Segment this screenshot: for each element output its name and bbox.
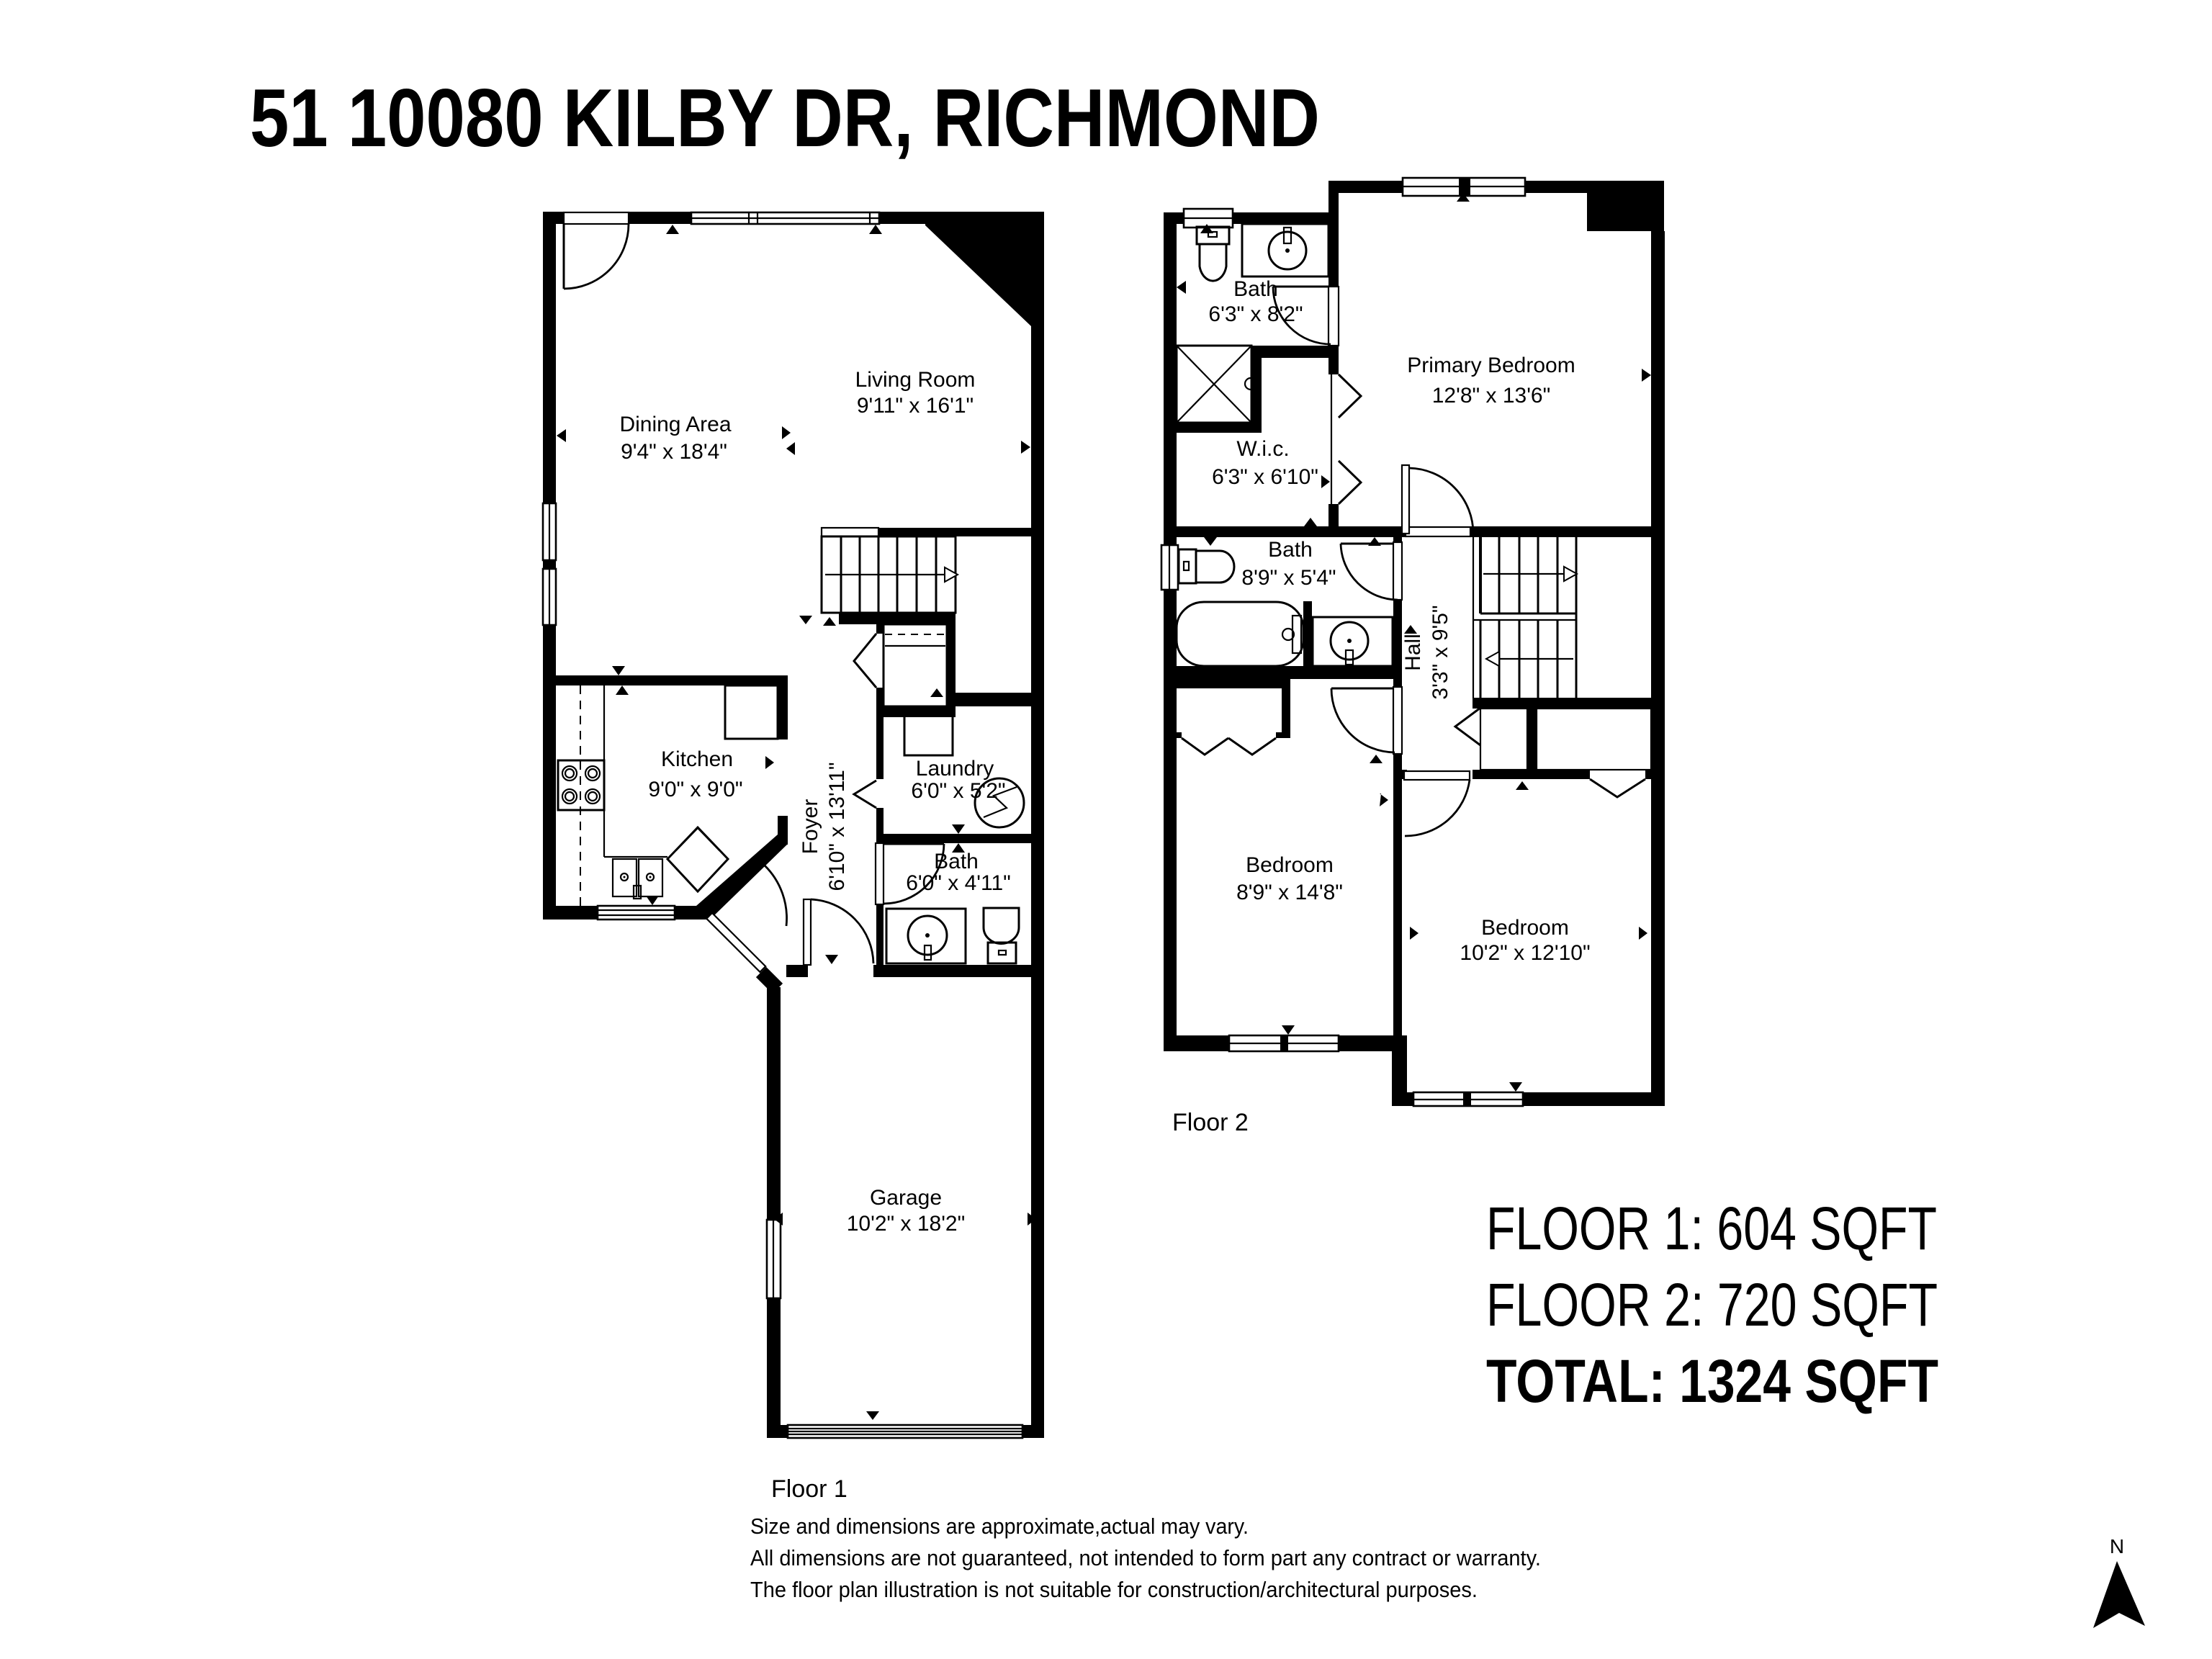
svg-text:Bath: Bath [934, 850, 979, 873]
svg-text:6'0" x 5'2": 6'0" x 5'2" [911, 779, 1005, 803]
svg-text:Garage: Garage [870, 1186, 942, 1210]
svg-text:All dimensions are not guarant: All dimensions are not guaranteed, not i… [750, 1545, 1541, 1570]
svg-text:The floor plan illustration is: The floor plan illustration is not suita… [750, 1577, 1478, 1602]
svg-text:Dining Area: Dining Area [619, 413, 731, 436]
svg-text:FLOOR 2: 720 SQFT: FLOOR 2: 720 SQFT [1486, 1271, 1938, 1339]
svg-text:3'3" x 9'5": 3'3" x 9'5" [1429, 605, 1452, 699]
svg-text:FLOOR 1: 604 SQFT: FLOOR 1: 604 SQFT [1486, 1195, 1937, 1262]
svg-text:10'2" x 18'2": 10'2" x 18'2" [847, 1212, 966, 1236]
svg-text:Bedroom: Bedroom [1246, 853, 1334, 877]
svg-text:6'3" x 6'10": 6'3" x 6'10" [1212, 465, 1318, 489]
svg-text:Floor 1: Floor 1 [771, 1475, 848, 1503]
svg-text:Foyer: Foyer [799, 799, 822, 855]
svg-text:9'0" x 9'0": 9'0" x 9'0" [648, 778, 742, 801]
svg-text:Hall: Hall [1401, 634, 1425, 671]
svg-text:Kitchen: Kitchen [661, 747, 733, 771]
svg-text:8'9" x 14'8": 8'9" x 14'8" [1236, 881, 1343, 904]
svg-text:6'0" x 4'11": 6'0" x 4'11" [906, 871, 1011, 895]
svg-text:10'2" x 12'10": 10'2" x 12'10" [1460, 941, 1590, 965]
svg-text:W.i.c.: W.i.c. [1236, 437, 1289, 461]
svg-text:Bath: Bath [1268, 538, 1313, 562]
svg-text:TOTAL: 1324 SQFT: TOTAL: 1324 SQFT [1486, 1347, 1938, 1415]
svg-text:Living Room: Living Room [855, 368, 976, 392]
svg-text:Laundry: Laundry [916, 757, 994, 781]
svg-text:9'11" x 16'1": 9'11" x 16'1" [857, 394, 974, 418]
svg-text:51 10080 KILBY DR, RICHMOND: 51 10080 KILBY DR, RICHMOND [250, 73, 1320, 164]
svg-text:9'4" x 18'4": 9'4" x 18'4" [621, 440, 727, 464]
svg-text:Bedroom: Bedroom [1481, 916, 1569, 940]
svg-text:Size and dimensions are approx: Size and dimensions are approximate,actu… [750, 1514, 1249, 1539]
svg-text:N: N [2110, 1535, 2124, 1557]
svg-text:Bath: Bath [1233, 277, 1278, 301]
svg-text:8'9" x 5'4": 8'9" x 5'4" [1241, 566, 1336, 590]
svg-text:Primary Bedroom: Primary Bedroom [1407, 354, 1575, 377]
svg-text:6'10" x 13'11": 6'10" x 13'11" [825, 763, 849, 891]
svg-text:Floor 2: Floor 2 [1172, 1109, 1249, 1136]
svg-text:6'3" x 8'2": 6'3" x 8'2" [1208, 302, 1303, 326]
svg-text:12'8" x 13'6": 12'8" x 13'6" [1432, 384, 1551, 408]
